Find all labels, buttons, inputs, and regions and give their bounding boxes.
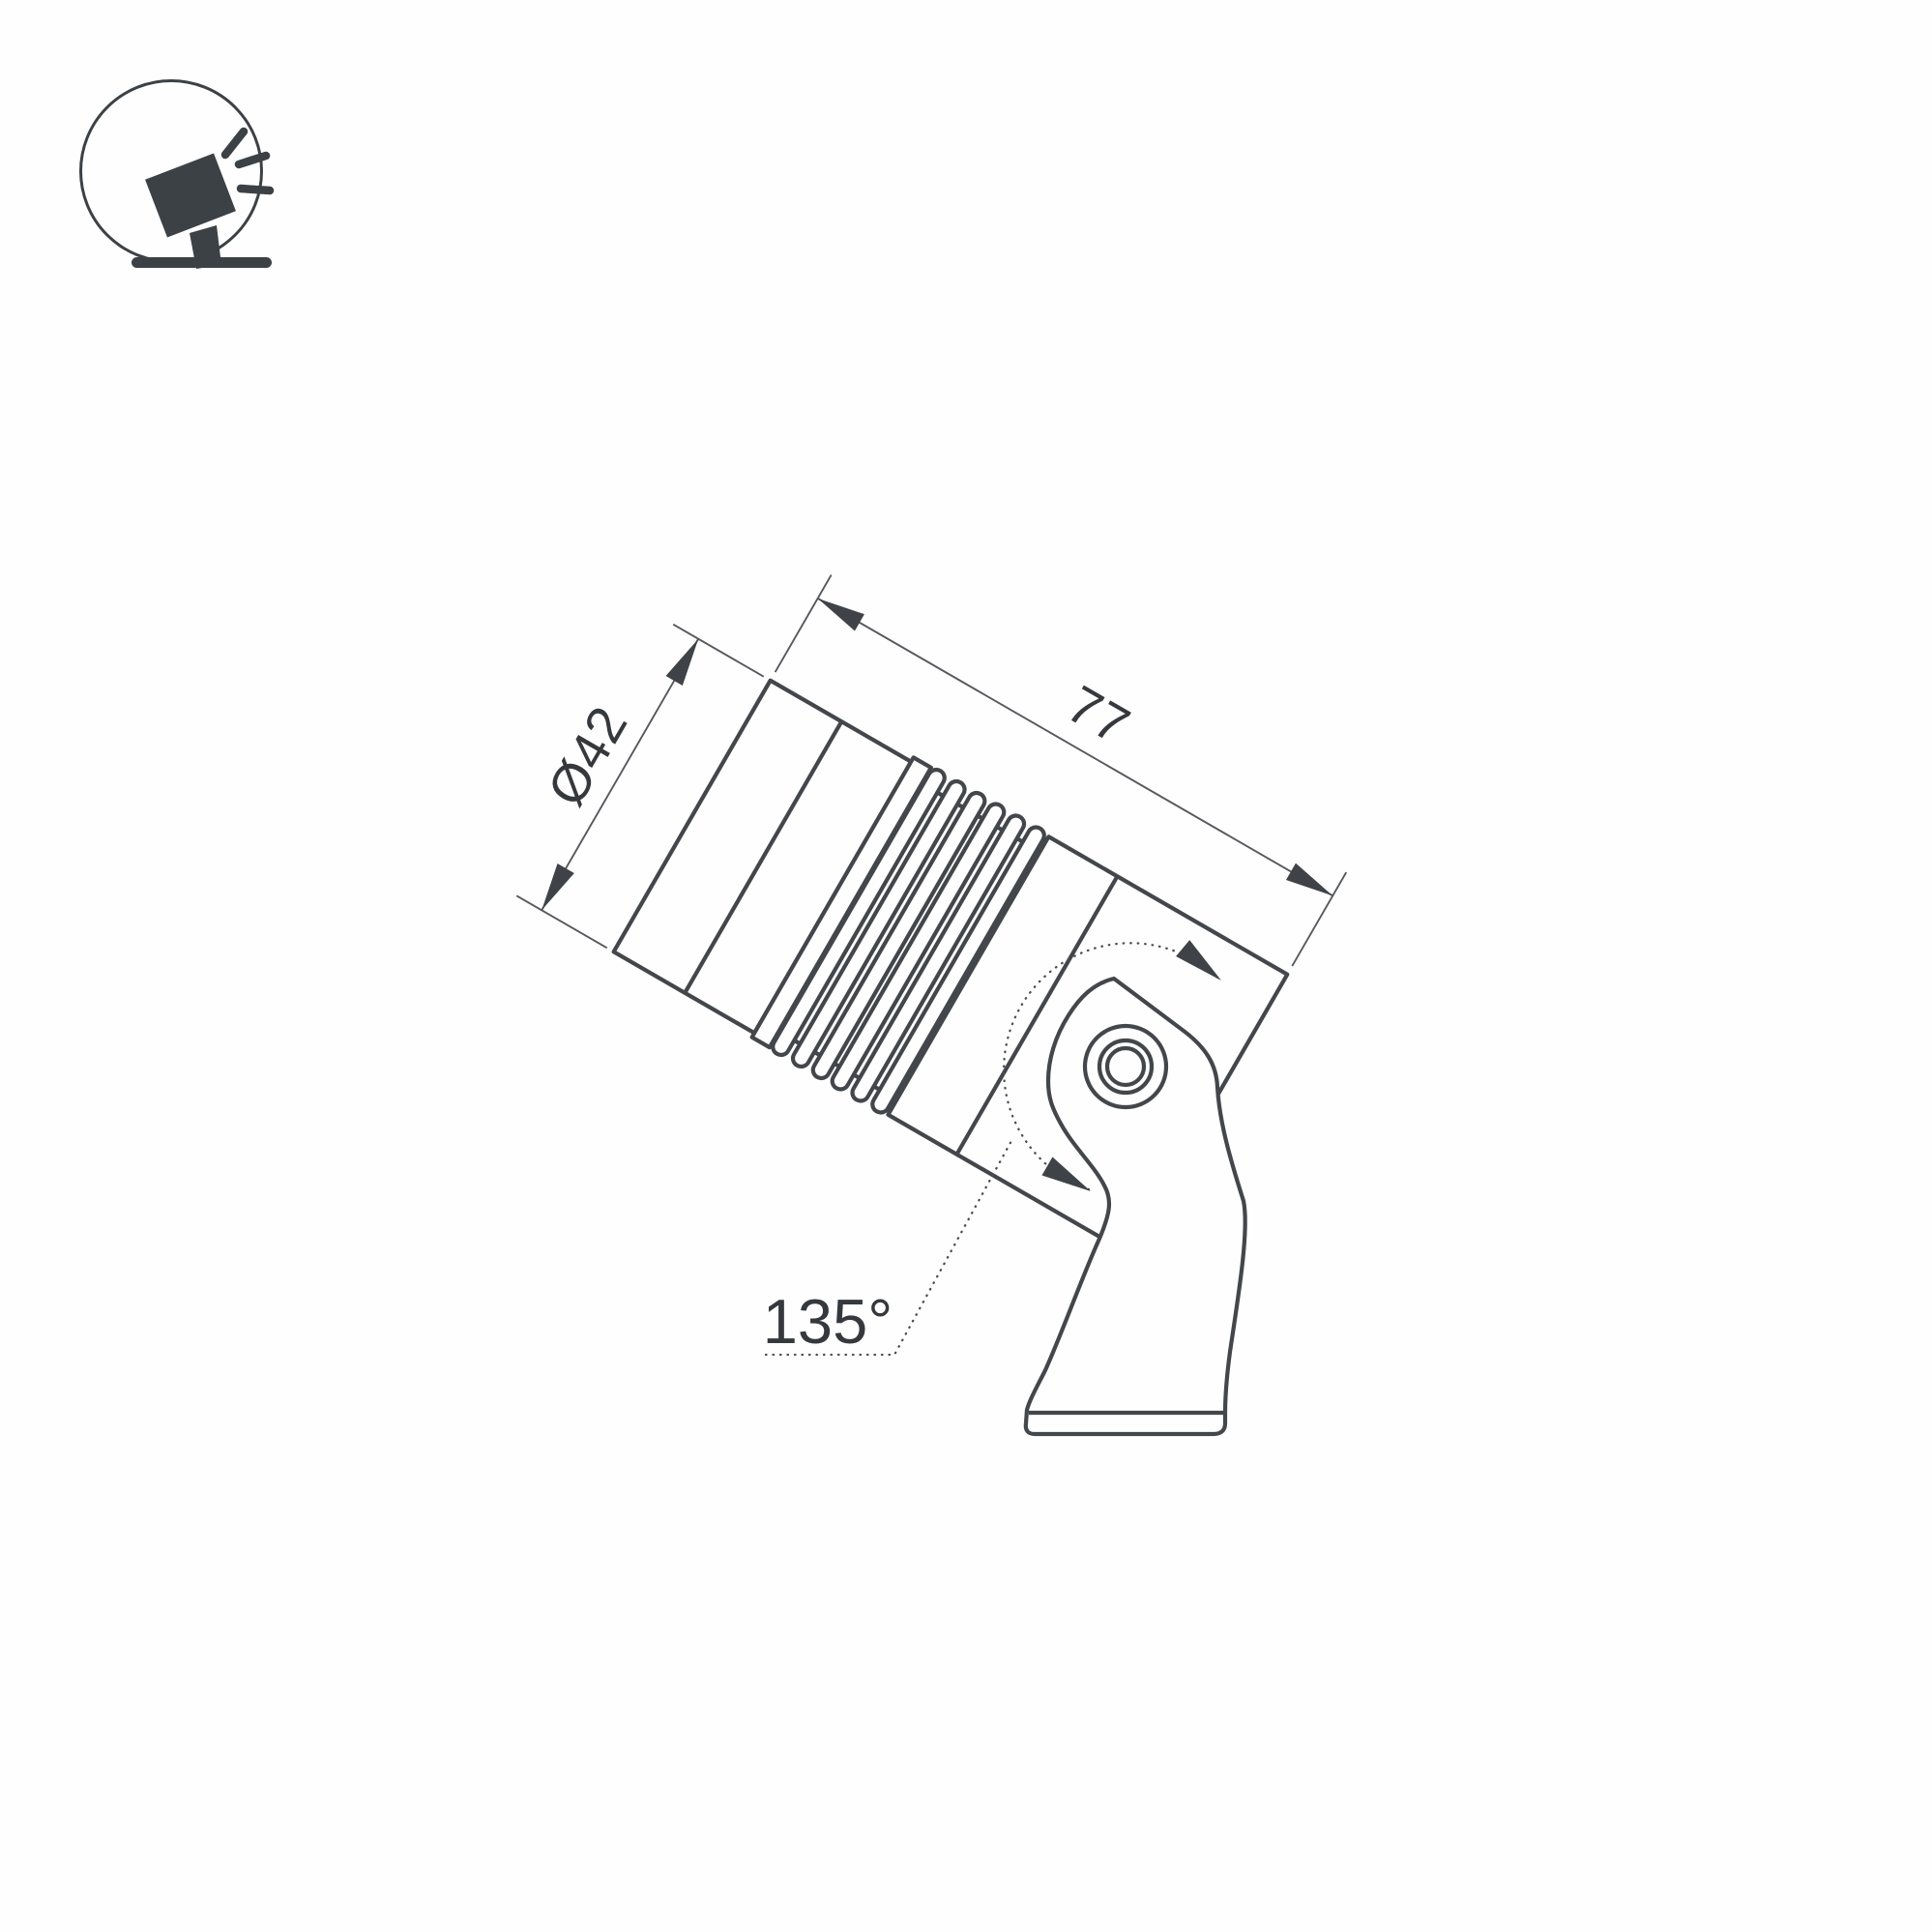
spotlight-icon bbox=[132, 132, 272, 269]
spotlight-base-icon bbox=[132, 257, 272, 268]
light-rays-icon bbox=[225, 132, 270, 190]
technical-drawing-svg: Ø42 77 bbox=[0, 0, 1932, 1932]
drawing-canvas: Ø42 77 bbox=[0, 0, 1932, 1932]
arrowhead-icon bbox=[666, 634, 707, 686]
arrowhead-icon bbox=[534, 864, 574, 915]
diameter-label: Ø42 bbox=[536, 696, 639, 816]
arrowhead-icon bbox=[813, 590, 864, 630]
arrowhead-icon bbox=[1286, 864, 1337, 904]
swivel-angle-label: 135° bbox=[763, 1286, 893, 1357]
extension-line bbox=[516, 895, 607, 948]
product-icon bbox=[81, 81, 273, 270]
extension-line bbox=[776, 575, 832, 672]
lamp-assembly: Ø42 77 bbox=[480, 462, 1367, 1254]
spotlight-head-icon bbox=[145, 154, 236, 238]
angle-annotation: 135° bbox=[763, 1139, 1012, 1357]
